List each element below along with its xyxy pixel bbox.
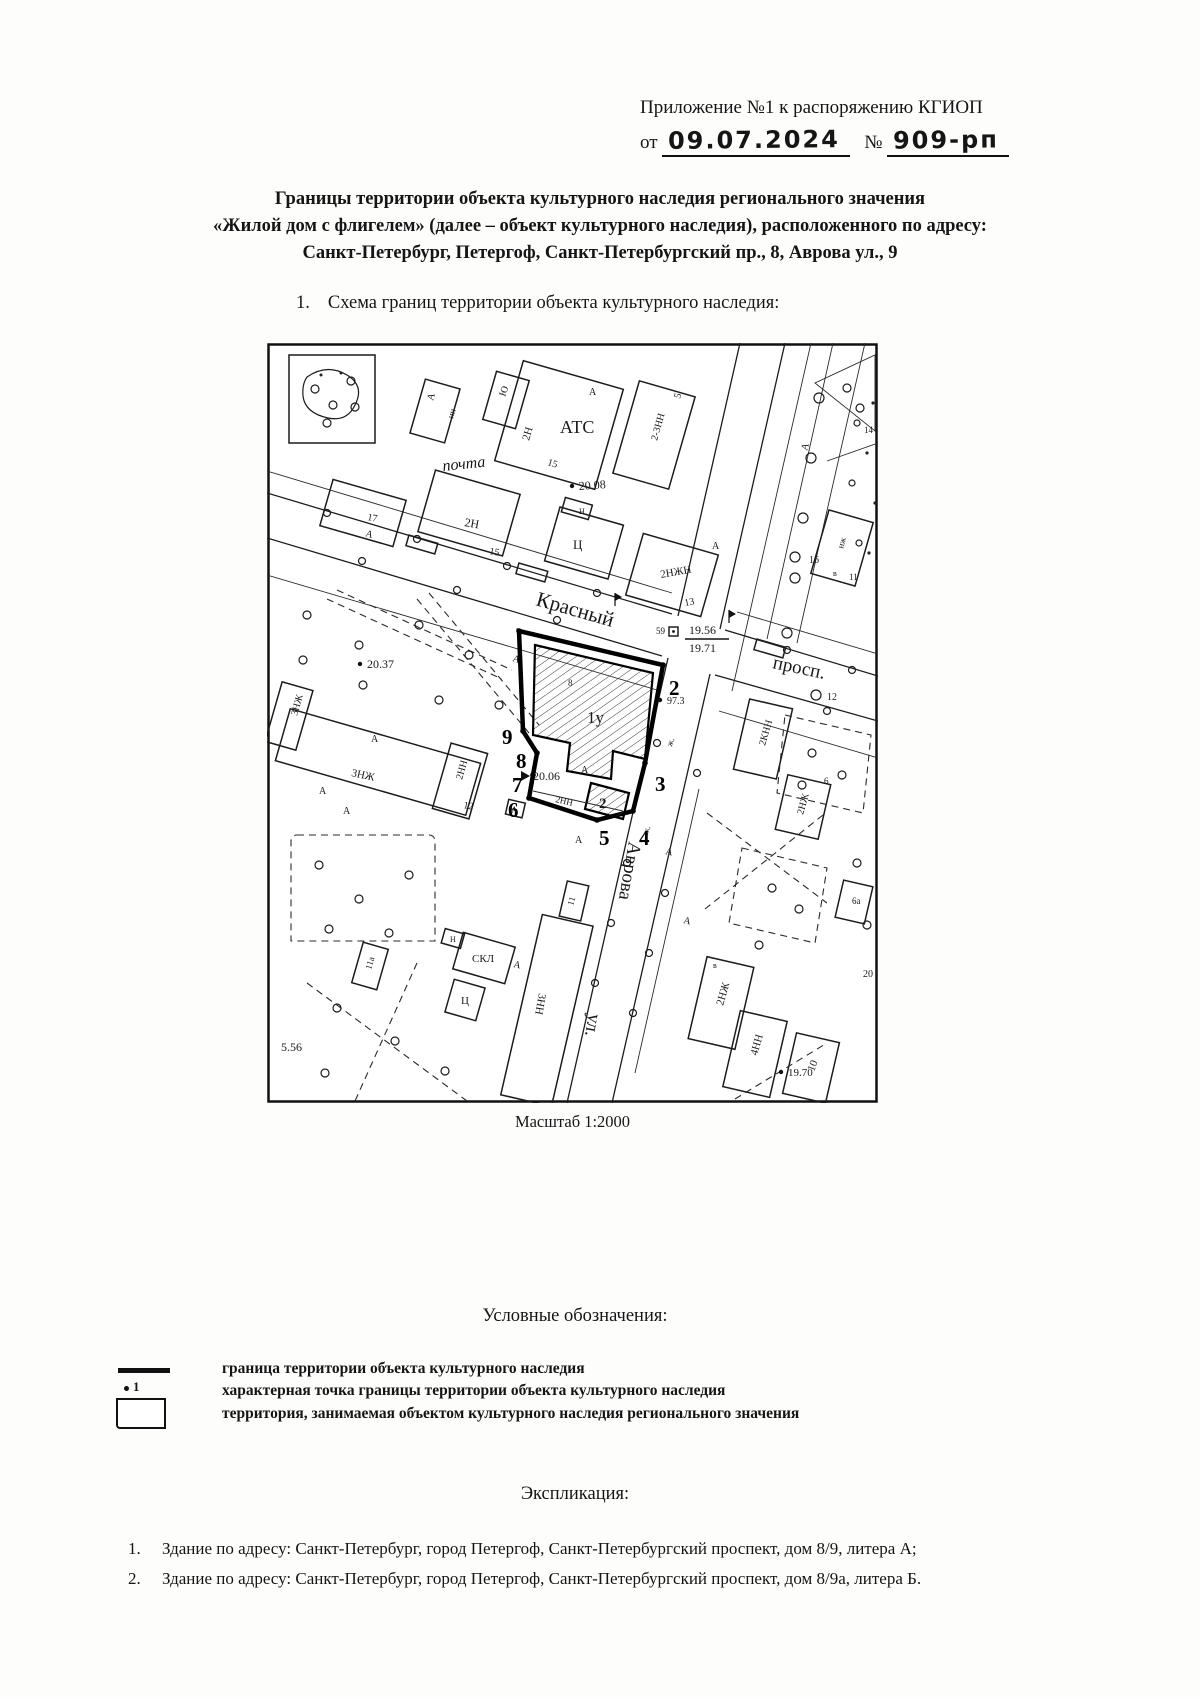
section1-text: Схема границ территории объекта культурн… (328, 293, 780, 313)
map-label: 12 (462, 800, 474, 813)
map-label: АТС (560, 417, 594, 437)
section1-number: 1. (296, 293, 310, 313)
map-label: в (713, 961, 717, 970)
map-point-number: 3 (655, 772, 666, 796)
map-label: 16 (809, 555, 819, 566)
map-point-number: 4 (639, 826, 650, 850)
map-label: 1у (587, 708, 605, 727)
map-label: 17 (366, 512, 378, 525)
handwritten-date: 09.07.2024 (662, 127, 850, 153)
map-label: Н (450, 935, 456, 944)
legend-boundary-line-symbol (118, 1368, 170, 1373)
map-label: А (319, 786, 327, 797)
point-dot-icon (124, 1386, 129, 1391)
title-line3: Санкт-Петербург, Петергоф, Санкт-Петербу… (60, 240, 1140, 267)
map-label: 14 (864, 425, 874, 435)
map-point-number: 6 (508, 798, 519, 822)
map-label: А (575, 835, 583, 846)
map-point-number: 7 (512, 773, 523, 797)
map-label: 6 (824, 776, 829, 786)
map-label: А (589, 387, 597, 398)
map: Красныйпросп.Авроваул.АТСпочта2НА2-3НН51… (267, 343, 878, 1103)
title-line1: Границы территории объекта культурного н… (60, 186, 1140, 213)
map-label: 15 (488, 546, 500, 559)
map-label: А (371, 734, 379, 745)
legend-point-number: 1 (133, 1379, 140, 1394)
legend-char-point-symbol: 1 (124, 1379, 140, 1395)
map-label: 5.56 (281, 1040, 302, 1054)
map-label: 8 (568, 678, 573, 688)
map-label: 11 (849, 572, 858, 582)
legend-territory-rect-symbol (116, 1398, 166, 1429)
document-title: Границы территории объекта культурного н… (60, 186, 1140, 267)
section1-heading: 1.Схема границ территории объекта культу… (296, 293, 779, 314)
number-underline: 909-рп (887, 128, 1009, 157)
explication-item-1-text: Здание по адресу: Санкт-Петербург, город… (162, 1539, 917, 1558)
map-label: в (833, 569, 837, 578)
explication-item-1: 1.Здание по адресу: Санкт-Петербург, гор… (128, 1539, 917, 1559)
map-label: 19.56 (689, 623, 716, 637)
explication-item-2: 2.Здание по адресу: Санкт-Петербург, гор… (128, 1569, 921, 1589)
title-line2: «Жилой дом с флигелем» (далее – объект к… (60, 213, 1140, 240)
map-label: А (712, 541, 720, 552)
map-point-number: 9 (502, 725, 513, 749)
map-point-number: 5 (599, 826, 610, 850)
map-point-number: 8 (516, 749, 527, 773)
map-label: 6а (852, 896, 861, 906)
legend-item-1: граница территории объекта культурного н… (222, 1360, 585, 1378)
map-label: 20 (863, 969, 873, 980)
document-page: Приложение №1 к распоряжению КГИОП от 09… (0, 0, 1200, 1697)
map-label: 59 (656, 626, 666, 636)
map-point-number: 2 (669, 676, 680, 700)
header-line2: от 09.07.2024 № 909-рп (640, 128, 1120, 157)
map-label: ул. (580, 1012, 605, 1038)
map-label: 13 (684, 596, 696, 609)
number-label: № (864, 132, 882, 153)
date-underline: 09.07.2024 (662, 128, 850, 157)
map-label: 20.37 (367, 657, 394, 671)
map-label: 20.06 (533, 769, 560, 783)
map-label: 12 (827, 692, 837, 703)
header-line1: Приложение №1 к распоряжению КГИОП (640, 96, 1120, 120)
map-label: Н (579, 507, 585, 516)
map-label: 2Н (463, 515, 480, 531)
explication-item-1-number: 1. (128, 1539, 162, 1559)
from-label: от (640, 132, 658, 153)
explication-title: Экспликация: (0, 1484, 1150, 1505)
map-label: СКЛ (472, 953, 495, 965)
map-label: 19.71 (689, 641, 716, 655)
legend-item-2: характерная точка границы территории объ… (222, 1382, 725, 1400)
map-label: Ц (461, 995, 469, 1007)
map-label: Ц (573, 537, 583, 552)
handwritten-number: 909-рп (887, 127, 1009, 152)
legend-item-3: территория, занимаемая объектом культурн… (222, 1405, 799, 1423)
map-scale-caption: Масштаб 1:2000 (267, 1112, 878, 1132)
header-block: Приложение №1 к распоряжению КГИОП от 09… (640, 96, 1120, 157)
legend-title: Условные обозначения: (0, 1306, 1150, 1327)
map-svg: Красныйпросп.Авроваул.АТСпочта2НА2-3НН51… (267, 343, 878, 1103)
map-label: 20.08 (578, 477, 606, 493)
map-label: 19.70 (788, 1067, 813, 1079)
map-label: А (581, 765, 589, 776)
explication-item-2-number: 2. (128, 1569, 162, 1589)
explication-item-2-text: Здание по адресу: Санкт-Петербург, город… (162, 1569, 921, 1588)
map-label: А (343, 806, 351, 817)
map-label: 2 (599, 796, 607, 812)
